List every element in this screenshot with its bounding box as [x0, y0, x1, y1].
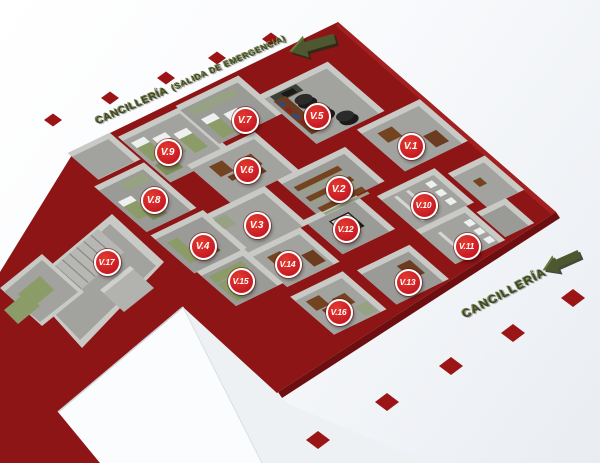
room-marker-v6[interactable]: V.6 — [234, 157, 261, 184]
room-marker-label: V.7 — [238, 115, 252, 126]
room-marker-v5[interactable]: V.5 — [304, 103, 331, 130]
room-marker-v10[interactable]: V.10 — [411, 192, 438, 219]
room-marker-label: V.13 — [400, 277, 416, 287]
room-marker-v16[interactable]: V.16 — [326, 299, 353, 326]
room-marker-v17[interactable]: V.17 — [94, 249, 121, 276]
room-marker-label: V.9 — [161, 147, 175, 158]
room-marker-v3[interactable]: V.3 — [244, 212, 271, 239]
room-markers-layer: V.1V.2V.3V.4V.5V.6V.7V.8V.9V.10V.11V.12V… — [0, 0, 600, 463]
floor-plan-stage: CANCILLERÍA (SALIDA DE EMERGENCIA) CANCI… — [0, 0, 600, 463]
room-marker-v9[interactable]: V.9 — [155, 139, 182, 166]
room-marker-v14[interactable]: V.14 — [275, 251, 302, 278]
room-marker-v15[interactable]: V.15 — [228, 268, 255, 295]
room-marker-v11[interactable]: V.11 — [454, 233, 481, 260]
room-marker-label: V.11 — [459, 241, 474, 251]
room-marker-label: V.6 — [240, 165, 254, 176]
room-marker-label: V.1 — [404, 141, 418, 152]
room-marker-v2[interactable]: V.2 — [326, 176, 353, 203]
room-marker-v4[interactable]: V.4 — [190, 233, 217, 260]
room-marker-label: V.5 — [310, 111, 324, 122]
room-marker-v1[interactable]: V.1 — [398, 133, 425, 160]
room-marker-label: V.12 — [338, 224, 354, 234]
room-marker-v8[interactable]: V.8 — [141, 187, 168, 214]
room-marker-label: V.3 — [250, 220, 264, 231]
room-marker-label: V.4 — [196, 241, 210, 252]
room-marker-v7[interactable]: V.7 — [232, 107, 259, 134]
room-marker-v13[interactable]: V.13 — [395, 269, 422, 296]
room-marker-label: V.10 — [416, 200, 432, 210]
room-marker-label: V.17 — [99, 257, 115, 267]
room-marker-label: V.16 — [331, 307, 347, 317]
room-marker-label: V.15 — [233, 276, 249, 286]
room-marker-label: V.2 — [332, 184, 346, 195]
room-marker-label: V.8 — [147, 195, 161, 206]
room-marker-label: V.14 — [280, 259, 296, 269]
room-marker-v12[interactable]: V.12 — [333, 216, 360, 243]
